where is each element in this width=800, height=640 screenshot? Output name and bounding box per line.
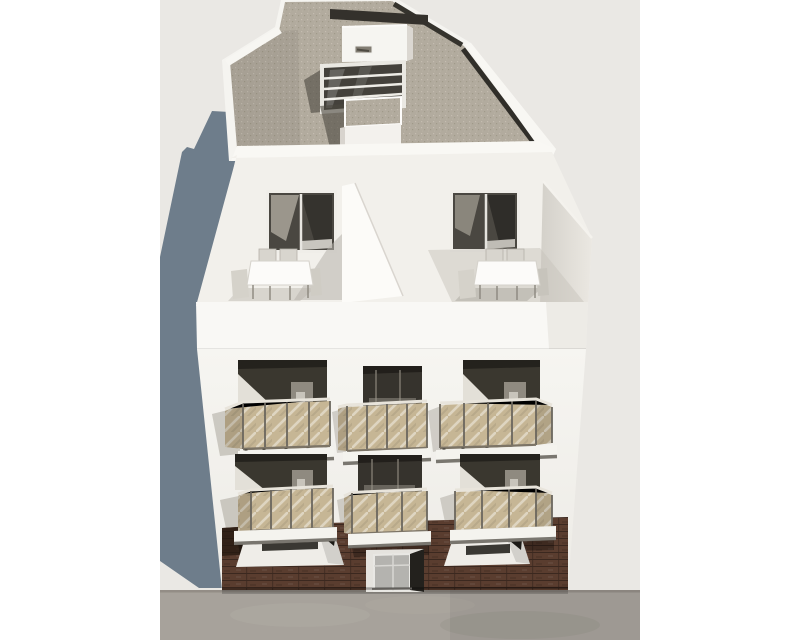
building-render-svg [160,0,640,640]
upper-floor-openings [238,360,540,406]
chair [280,249,297,262]
balcony-glass [251,488,333,531]
opening-upper-left [238,360,327,404]
chair [231,269,249,299]
table-top [474,261,540,285]
terrace-door-right [450,190,520,252]
opening-lower-left [235,454,327,490]
sidewalk [160,590,640,640]
chair [259,249,276,262]
terrace-door-left [266,190,337,253]
balcony-glass [455,489,536,531]
balcony-lower-left [234,486,337,545]
opening-upper-center [363,366,422,406]
terrace-parapet [196,302,588,349]
chair [458,269,476,299]
balcony-glass [352,491,427,534]
chair [507,249,524,262]
stair-bulkhead [342,25,413,62]
chair [486,249,503,262]
balcony-upper-right [436,399,557,463]
building-base-shadow [222,588,568,589]
architectural-render [160,0,640,640]
lower-floor-openings [235,454,540,492]
terrace-level [196,152,592,306]
balcony-lower-center [344,489,431,548]
entrance-door-glass [374,554,410,591]
entrance-door-jamb-shadow [410,549,424,592]
opening-upper-right [463,360,540,404]
balcony-lower-right [450,487,556,544]
table-top [247,261,313,285]
opening-lower-center [358,455,422,492]
opening-lower-right [460,454,540,490]
entrance-door [366,549,424,592]
image-canvas [0,0,800,640]
